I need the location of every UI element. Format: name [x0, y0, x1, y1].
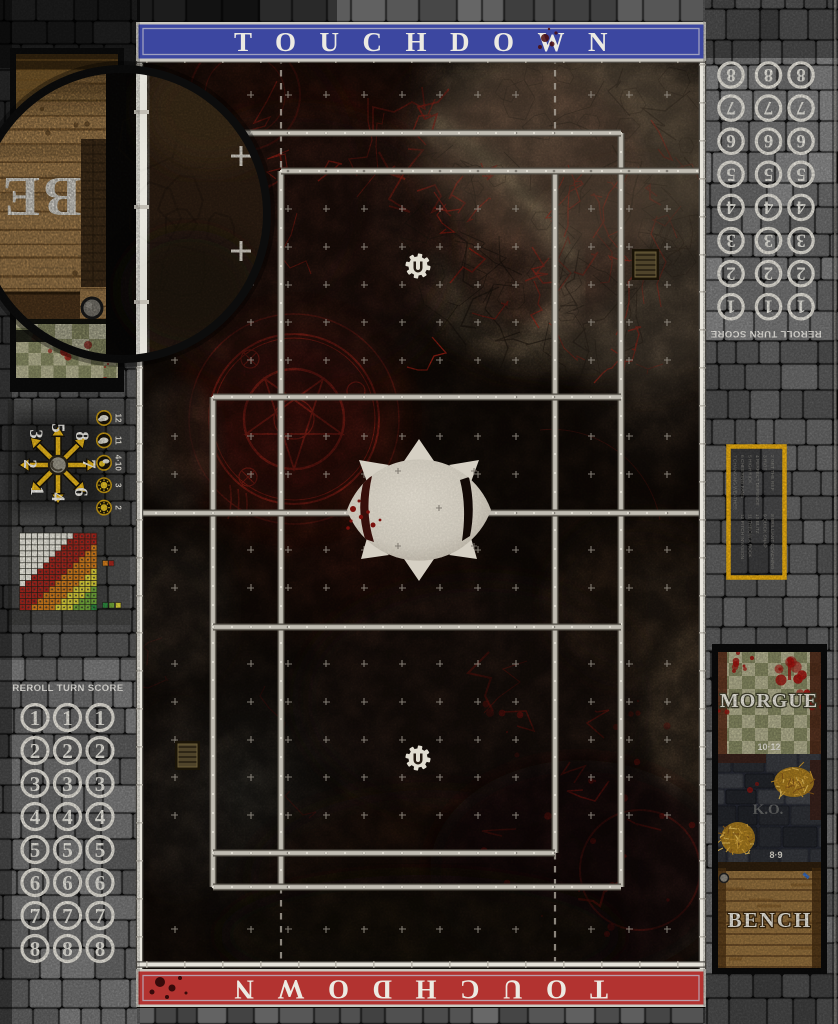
- svg-text:TOUCHDOWN: TOUCHDOWN: [211, 975, 608, 1005]
- svg-text:TOUCHDOWN: TOUCHDOWN: [234, 27, 631, 57]
